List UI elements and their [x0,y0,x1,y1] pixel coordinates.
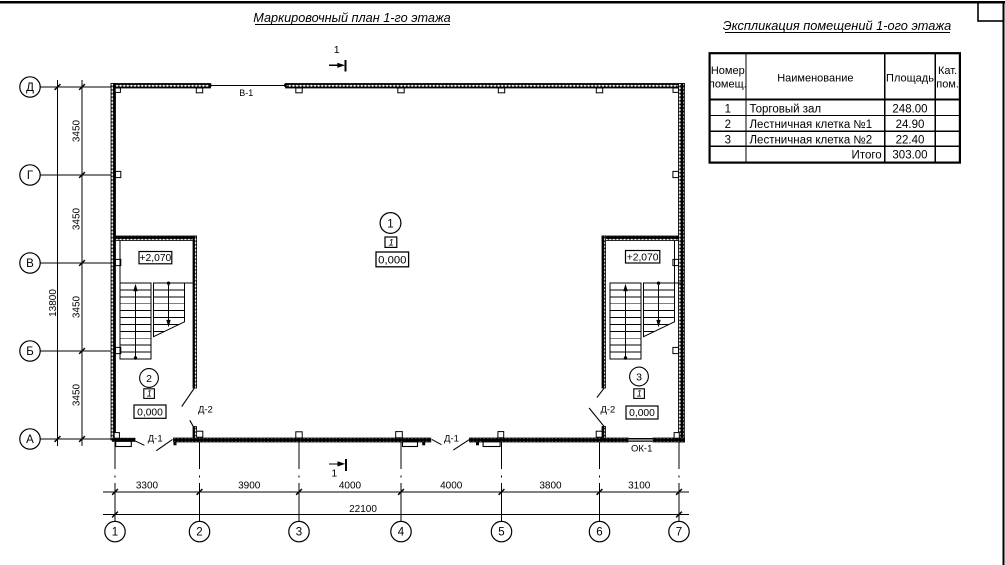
svg-text:3800: 3800 [539,481,562,492]
svg-text:3450: 3450 [71,119,82,142]
svg-text:1: 1 [387,218,393,230]
svg-text:3450: 3450 [71,207,82,230]
svg-text:А: А [26,434,34,446]
svg-text:2: 2 [725,119,731,131]
svg-text:Г: Г [27,170,34,182]
svg-text:Итого: Итого [852,150,882,162]
svg-text:5: 5 [498,527,504,539]
svg-text:303.00: 303.00 [892,150,927,162]
svg-text:4: 4 [398,527,405,539]
svg-text:1: 1 [389,238,394,249]
svg-text:Лестничная клетка №2: Лестничная клетка №2 [750,135,873,147]
svg-text:3300: 3300 [136,481,159,492]
svg-text:3450: 3450 [71,383,82,406]
svg-text:1: 1 [112,527,118,539]
svg-text:13800: 13800 [48,289,59,317]
svg-text:Площадь: Площадь [886,73,934,85]
svg-text:Номер: Номер [711,65,745,77]
svg-text:1: 1 [331,467,337,479]
svg-text:0,000: 0,000 [629,408,655,419]
svg-text:2: 2 [146,373,152,385]
svg-text:Д: Д [26,82,34,94]
svg-text:22100: 22100 [349,504,377,515]
svg-text:Маркировочный план 1-го этажа: Маркировочный план 1-го этажа [253,11,450,25]
svg-text:ОК-1: ОК-1 [631,444,652,455]
svg-text:4000: 4000 [339,481,362,492]
svg-text:Лестничная клетка №1: Лестничная клетка №1 [750,119,873,131]
svg-text:3100: 3100 [628,481,651,492]
svg-text:Экспликация помещений 1-ого эт: Экспликация помещений 1-ого этажа [723,18,952,33]
svg-text:Д-2: Д-2 [600,404,615,415]
svg-text:3: 3 [636,372,642,384]
svg-text:3: 3 [296,527,302,539]
svg-text:24.90: 24.90 [896,119,925,131]
svg-text:1: 1 [725,103,731,115]
svg-text:248.00: 248.00 [892,103,927,115]
svg-text:+2,070: +2,070 [627,252,659,263]
svg-text:Торговый зал: Торговый зал [750,103,822,115]
svg-text:В-1: В-1 [239,88,253,98]
svg-text:2: 2 [196,527,202,539]
svg-text:помещ.: помещ. [709,79,747,91]
svg-text:Д-1: Д-1 [444,434,459,445]
svg-text:0,000: 0,000 [378,255,406,267]
svg-text:Кат.: Кат. [938,65,957,77]
svg-text:Д-2: Д-2 [198,404,213,415]
svg-text:0,000: 0,000 [137,407,163,418]
svg-text:3900: 3900 [238,481,261,492]
svg-text:1: 1 [637,389,642,399]
svg-text:3: 3 [725,135,731,147]
svg-text:4000: 4000 [440,481,463,492]
svg-text:Наименование: Наименование [777,73,853,85]
svg-text:22.40: 22.40 [896,135,925,147]
svg-text:+2,070: +2,070 [140,253,172,264]
svg-text:3450: 3450 [71,295,82,318]
svg-text:Д-1: Д-1 [148,434,163,445]
svg-text:В: В [26,258,34,270]
svg-text:6: 6 [596,527,602,539]
svg-text:1: 1 [334,44,340,56]
svg-text:пом.: пом. [936,79,959,91]
svg-text:Б: Б [26,346,34,358]
svg-text:7: 7 [676,527,682,539]
svg-text:1: 1 [147,389,152,399]
